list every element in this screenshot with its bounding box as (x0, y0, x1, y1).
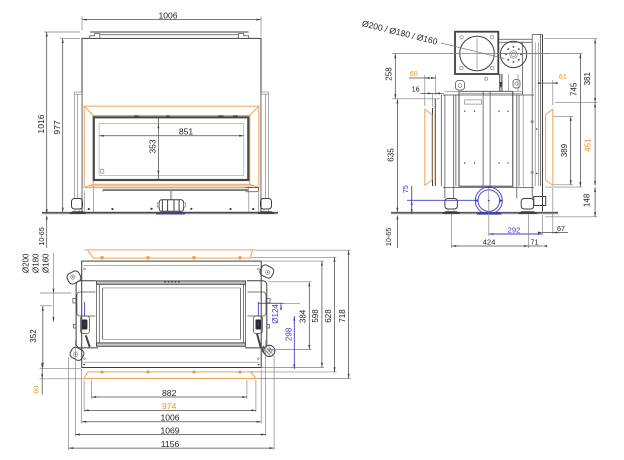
svg-text:1006: 1006 (160, 413, 179, 423)
svg-text:10-65: 10-65 (384, 228, 393, 246)
svg-text:71: 71 (531, 238, 539, 247)
svg-text:Ø124: Ø124 (271, 304, 280, 324)
svg-text:75: 75 (401, 185, 410, 193)
svg-text:882: 882 (162, 388, 177, 398)
svg-text:635: 635 (387, 148, 396, 162)
svg-text:60: 60 (32, 386, 41, 394)
svg-text:1069: 1069 (160, 425, 179, 435)
svg-text:1016: 1016 (36, 114, 46, 133)
svg-text:451: 451 (583, 138, 592, 152)
svg-text:384: 384 (299, 309, 308, 323)
svg-text:Ø200: Ø200 (22, 253, 31, 273)
svg-text:389: 389 (560, 143, 569, 157)
svg-text:298: 298 (284, 327, 293, 341)
svg-text:10-65: 10-65 (37, 227, 46, 245)
svg-text:1156: 1156 (161, 439, 180, 449)
svg-text:977: 977 (52, 120, 62, 135)
svg-text:353: 353 (148, 139, 158, 154)
svg-text:258: 258 (385, 67, 394, 81)
svg-text:718: 718 (338, 309, 347, 323)
svg-text:61: 61 (559, 72, 567, 81)
svg-text:628: 628 (324, 309, 333, 323)
svg-text:67: 67 (557, 224, 565, 233)
svg-text:Ø160: Ø160 (42, 253, 51, 273)
svg-text:Ø180: Ø180 (32, 253, 41, 273)
svg-text:60: 60 (410, 69, 418, 78)
svg-text:974: 974 (162, 401, 177, 411)
svg-text:424: 424 (483, 238, 497, 247)
svg-text:598: 598 (311, 309, 320, 323)
svg-text:1006: 1006 (158, 10, 177, 20)
svg-text:148: 148 (582, 193, 591, 207)
svg-text:745: 745 (569, 82, 578, 96)
svg-text:851: 851 (179, 126, 194, 136)
svg-text:352: 352 (29, 329, 38, 343)
svg-text:381: 381 (583, 71, 592, 85)
svg-text:292: 292 (508, 226, 521, 235)
svg-text:16: 16 (412, 85, 420, 94)
